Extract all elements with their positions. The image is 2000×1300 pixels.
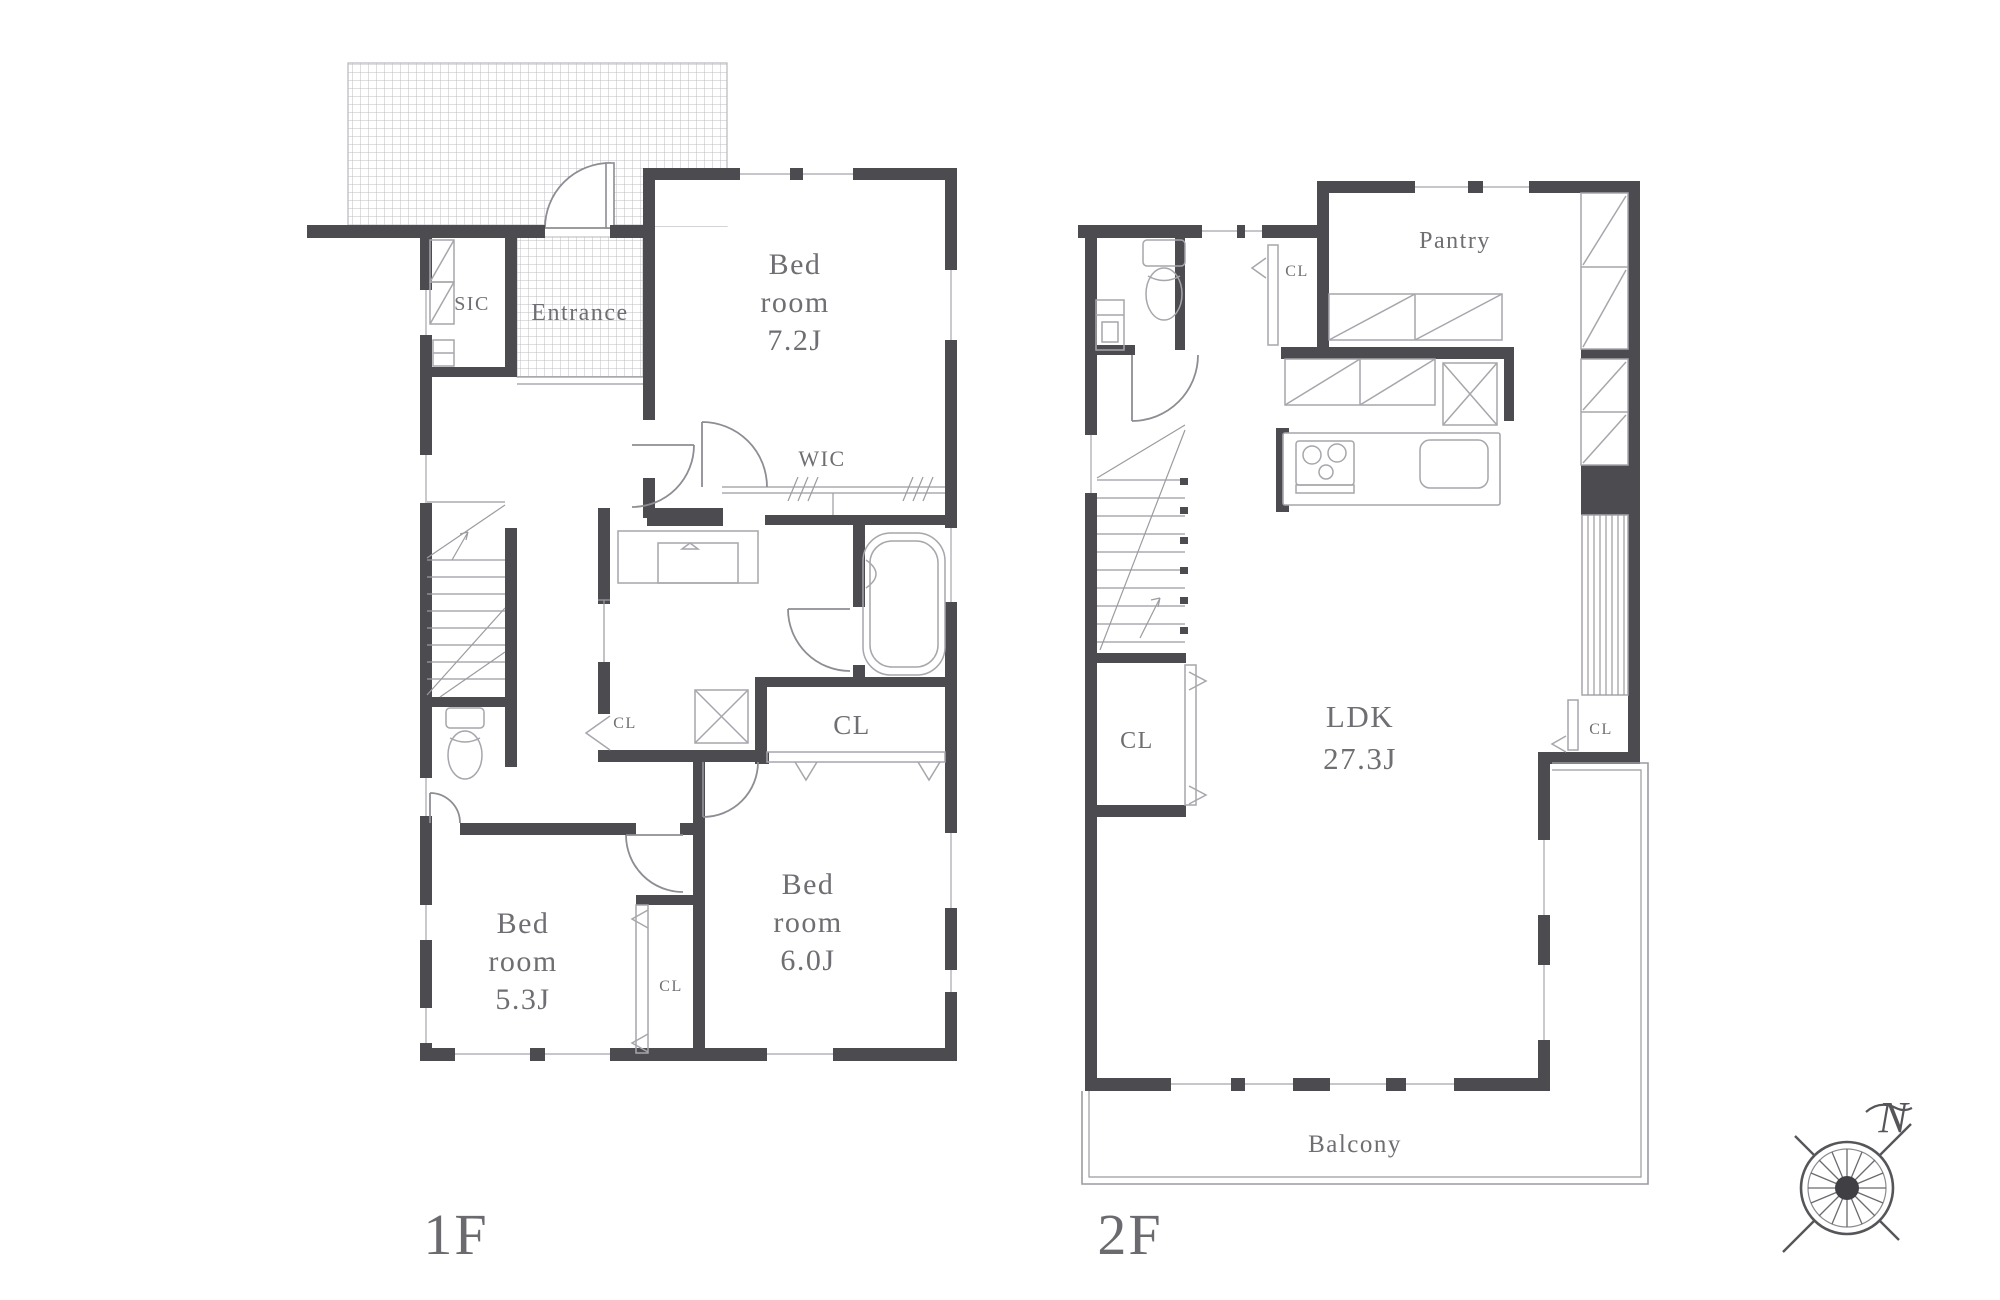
label-bedroom53-1: Bed	[497, 907, 550, 940]
closet-door-stairs-2f	[1185, 665, 1206, 805]
label-ldk-1: LDK	[1326, 699, 1394, 734]
bath-door	[788, 609, 850, 671]
toilet-door-1f	[430, 793, 460, 823]
kitchen-back-counter	[1285, 359, 1435, 405]
plan-1f: SIC Entrance Bed room 7.2J WIC CL CL CL …	[307, 63, 957, 1267]
vanity-fixture	[618, 531, 758, 583]
label-sic: SIC	[454, 293, 490, 315]
label-wic: WIC	[798, 446, 845, 471]
floorplan-canvas: SIC Entrance Bed room 7.2J WIC CL CL CL …	[0, 0, 2000, 1300]
label-cl-hall-1f: CL	[613, 715, 636, 732]
closet-door-mid	[632, 905, 648, 1053]
bedroom5-door	[626, 835, 683, 892]
floorplan-page: SIC Entrance Bed room 7.2J WIC CL CL CL …	[0, 0, 2000, 1300]
washroom-sliding-door	[598, 600, 610, 662]
closet-door-hall	[586, 716, 610, 750]
label-bedroom72-3: 7.2J	[767, 324, 822, 357]
stairs-2f	[1097, 425, 1188, 650]
kitchen-island	[1283, 433, 1500, 505]
label-ldk-2: 27.3J	[1323, 741, 1397, 776]
floor-label-2f: 2F	[1097, 1202, 1162, 1267]
label-cl-hall-2f: CL	[1285, 263, 1308, 280]
closet-door-hall-2f	[1252, 245, 1278, 345]
label-balcony: Balcony	[1308, 1131, 1402, 1158]
louver-panel	[1582, 515, 1628, 695]
label-bedroom60-3: 6.0J	[780, 944, 835, 977]
label-entrance: Entrance	[531, 300, 628, 326]
closet-door-side-2f	[1552, 700, 1578, 752]
label-bedroom72-2: room	[760, 286, 829, 319]
compass-north-label: N	[1877, 1093, 1910, 1142]
label-bedroom53-2: room	[488, 945, 557, 978]
bedroom7-door	[632, 445, 694, 507]
refrigerator-space	[1443, 363, 1497, 425]
label-cl-stairs-2f: CL	[1120, 728, 1154, 754]
walls-2f	[1078, 181, 1640, 1091]
closet-door-bedroom6	[767, 752, 945, 780]
toilet-fixture-2f	[1096, 240, 1185, 350]
stairs-1f	[427, 502, 505, 697]
label-bedroom60-2: room	[773, 906, 842, 939]
label-bedroom60-1: Bed	[782, 868, 835, 901]
label-cl-bedroom5: CL	[659, 978, 682, 995]
balcony-outline	[1082, 763, 1648, 1184]
wic-hanger-rod	[722, 477, 945, 515]
label-pantry: Pantry	[1419, 228, 1491, 254]
laundry-pan	[695, 690, 748, 743]
floor-label-1f: 1F	[423, 1202, 488, 1267]
porch-deck	[348, 63, 730, 226]
compass-rose-icon: N	[1783, 1093, 1912, 1252]
pantry-counter	[1329, 294, 1502, 340]
label-cl-bedroom6: CL	[833, 710, 871, 740]
bathtub-fixture	[863, 533, 945, 675]
label-bedroom72-1: Bed	[769, 248, 822, 281]
cabinet-column	[1581, 193, 1628, 465]
label-cl-side-2f: CL	[1589, 721, 1612, 738]
wic-door	[702, 422, 767, 487]
bedroom6-door	[703, 762, 758, 817]
toilet-door-2f	[1132, 355, 1198, 421]
plan-2f: Pantry CL CL LDK 27.3J CL Balcony 2F	[1078, 181, 1648, 1267]
label-bedroom53-3: 5.3J	[495, 983, 550, 1016]
toilet-fixture-1f	[446, 708, 484, 779]
sic-shelves	[430, 240, 454, 366]
